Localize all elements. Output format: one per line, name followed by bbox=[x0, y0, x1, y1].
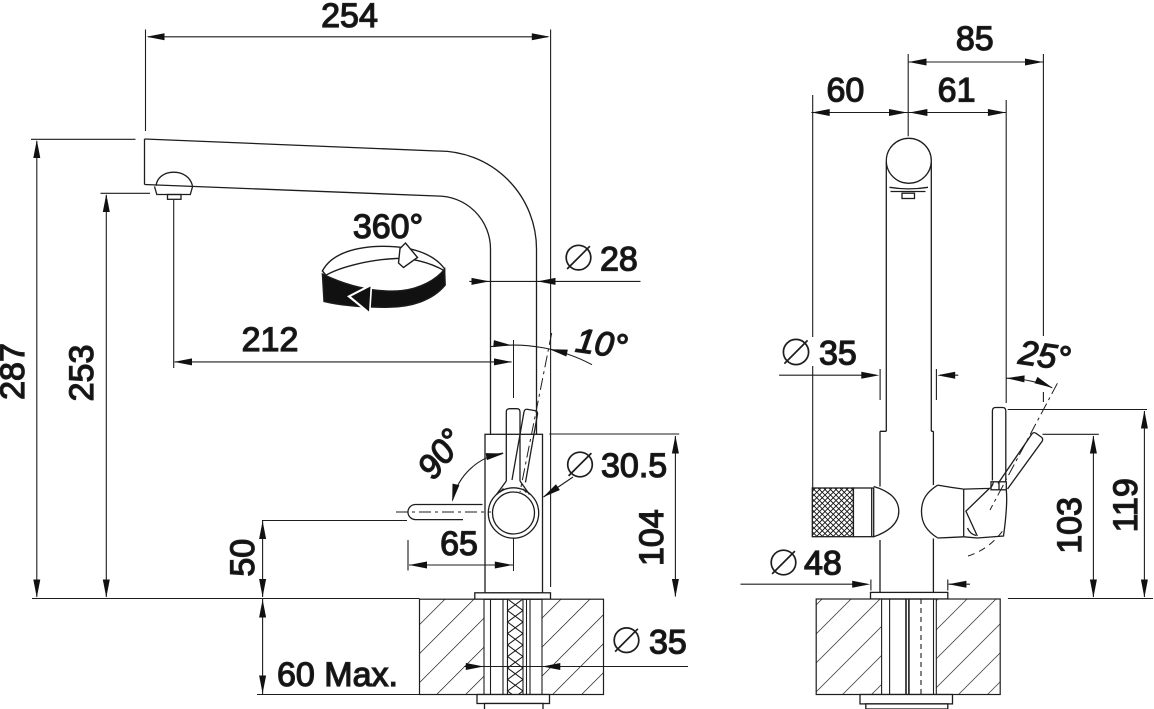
svg-text:10°: 10° bbox=[573, 322, 629, 367]
svg-text:65: 65 bbox=[440, 525, 478, 563]
svg-text:61: 61 bbox=[938, 72, 976, 110]
svg-text:35: 35 bbox=[819, 335, 857, 373]
svg-text:60: 60 bbox=[826, 72, 864, 110]
svg-text:48: 48 bbox=[804, 545, 842, 583]
svg-text:35: 35 bbox=[649, 624, 687, 662]
svg-text:103: 103 bbox=[1051, 497, 1089, 554]
svg-text:60 Max.: 60 Max. bbox=[277, 656, 398, 694]
svg-text:30.5: 30.5 bbox=[601, 447, 667, 485]
svg-text:50: 50 bbox=[224, 539, 262, 577]
svg-text:253: 253 bbox=[63, 345, 101, 402]
svg-text:254: 254 bbox=[321, 0, 378, 35]
svg-text:28: 28 bbox=[600, 241, 638, 279]
svg-text:212: 212 bbox=[242, 321, 299, 359]
svg-text:85: 85 bbox=[956, 20, 994, 58]
svg-text:287: 287 bbox=[0, 343, 32, 400]
svg-text:360°: 360° bbox=[353, 208, 423, 246]
svg-text:104: 104 bbox=[633, 509, 671, 566]
svg-text:25°: 25° bbox=[1015, 334, 1072, 379]
svg-text:119: 119 bbox=[1107, 478, 1145, 532]
